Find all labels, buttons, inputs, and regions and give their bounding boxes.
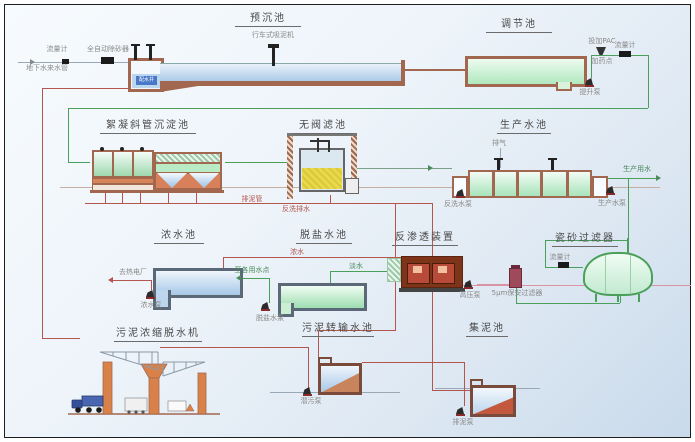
sludge-dewatering-machine	[68, 346, 222, 418]
vent-symbol	[497, 160, 500, 170]
backwash-pump-label: 反洗水泵	[440, 201, 476, 208]
sludge-pipe	[42, 88, 130, 89]
dosing-point-label: 加药点	[588, 58, 616, 65]
water-pipe	[628, 178, 629, 240]
ro-door-panel	[438, 266, 447, 273]
mixer-dot	[120, 147, 124, 151]
process-flow-diagram: 配水井	[0, 0, 695, 442]
arrow-right	[656, 175, 661, 181]
desalted-pump-symbol	[261, 301, 270, 311]
regulating-title: 调节池	[486, 19, 552, 33]
presed-title: 预沉池	[235, 13, 301, 27]
desalted-out-label: 至各用水点	[228, 267, 276, 274]
sludge-pipe	[362, 362, 464, 363]
concentrate-title: 浓水池	[154, 230, 204, 244]
floc-cell-divider	[112, 151, 114, 177]
valveless-outlet-box	[345, 178, 359, 194]
mixer-symbol	[134, 45, 137, 60]
transfer-pool-weir	[318, 357, 332, 365]
valveless-media	[302, 168, 342, 189]
collect-title: 集泥池	[466, 323, 508, 337]
regulating-meter-label: 流量计	[611, 42, 639, 49]
desalted-title: 脱盐水池	[296, 230, 352, 244]
sludge-pipe	[140, 192, 141, 203]
ceramic-meter-label: 流量计	[546, 254, 574, 261]
high-pressure-pump-symbol	[464, 279, 473, 289]
flow-meter-symbol	[619, 51, 631, 57]
desalted-out-pipe	[240, 278, 269, 279]
vent-symbol	[494, 158, 503, 160]
vent-symbol	[551, 160, 554, 170]
floc-title: 絮凝斜管沉淀池	[100, 120, 196, 134]
inlet-source-label: 地下水来水管	[18, 65, 76, 72]
settler-water	[154, 164, 222, 172]
product-water-pipe	[608, 178, 660, 179]
backwash-drain-pipe	[330, 195, 331, 203]
mixer-symbol	[146, 44, 155, 46]
desalted-pump-label: 脱盐水泵	[250, 315, 290, 322]
product-pump-symbol	[606, 185, 615, 195]
siphon-pipe	[328, 142, 330, 152]
lift-pump-label: 提升泵	[574, 89, 606, 96]
arrow-left	[236, 275, 241, 281]
presed-to-regulating-pipe	[403, 69, 465, 71]
sludge-pipe	[122, 192, 123, 203]
ceramic-filter-leg	[595, 294, 597, 302]
sludge-pipe	[105, 192, 106, 203]
concentrate-line-label: 浓水	[285, 249, 309, 256]
valveless-title: 无阀滤池	[293, 120, 353, 134]
product-title: 生产水池	[497, 120, 551, 134]
mixer-symbol	[149, 45, 152, 60]
transfer-pump-label: 潜污泵	[296, 398, 326, 405]
backwash-pump-symbol	[456, 188, 465, 198]
filtered-water-pipe	[357, 168, 452, 169]
collect-pump-label: 排泥泵	[448, 419, 478, 426]
desalted-out-pipe	[269, 278, 270, 303]
concentrate-pipe	[223, 257, 224, 268]
cartridge-filter-vessel	[509, 268, 522, 288]
transfer-pump-symbol	[303, 386, 312, 396]
flow-meter-symbol	[558, 262, 569, 268]
ceramic-title: 瓷砂过滤器	[552, 233, 618, 247]
settler-lamella	[154, 152, 222, 164]
product-divider	[566, 171, 569, 197]
arrow-right	[428, 165, 433, 171]
ceramic-filter-leg	[638, 294, 640, 302]
sludge-pipe	[308, 347, 309, 388]
product-out-label: 生产用水	[618, 166, 656, 173]
water-pipe	[516, 303, 620, 304]
sludge-manifold	[85, 203, 432, 204]
concentrate-pipe	[223, 257, 402, 258]
arrow-left	[108, 277, 113, 283]
floc-cells	[92, 150, 154, 178]
hp-pump-label: 高压泵	[454, 292, 486, 299]
ro-membrane-rack	[387, 258, 401, 282]
water-pipe	[68, 162, 90, 163]
inlet-meter-label: 流量计	[42, 46, 72, 53]
concentrate-pump-symbol	[146, 289, 155, 299]
ro-door-panel	[413, 266, 422, 273]
dewater-title: 污泥浓缩脱水机	[114, 328, 202, 342]
product-divider	[540, 171, 543, 197]
vent-label: 排气	[487, 140, 511, 147]
cartridge-filter-cap	[511, 265, 520, 268]
water-pipe	[620, 296, 621, 303]
collect-pump-symbol	[456, 406, 465, 416]
siphon-pipe	[310, 140, 330, 142]
collect-pool-weir	[470, 379, 483, 387]
product-divider	[516, 171, 519, 197]
concentrate-out-pipe	[112, 280, 151, 281]
ceramic-filter-leg	[617, 294, 619, 302]
scraper-machine-top	[268, 44, 279, 48]
sludge-pipe	[168, 192, 169, 203]
ro-title: 反渗透装置	[392, 232, 458, 246]
presed-basin-water	[160, 63, 404, 82]
vent-symbol	[548, 158, 557, 160]
water-pipe	[68, 108, 69, 162]
settled-water-pipe	[225, 162, 288, 163]
valveless-left-wall	[287, 136, 293, 199]
lift-pump-symbol	[585, 77, 594, 87]
water-main-pipe	[68, 108, 648, 109]
sludge-pipe	[42, 338, 80, 339]
permeate-line-label: 淡水	[344, 263, 368, 270]
ceramic-filter-vessel	[583, 252, 653, 296]
scraper-machine	[272, 46, 275, 66]
sludge-pipe	[196, 192, 197, 203]
sand-separator-label: 全自动除砂器	[82, 46, 134, 53]
presed-right-wall	[401, 60, 405, 86]
presed-well-box: 配水井	[136, 76, 157, 85]
product-pool	[468, 170, 592, 198]
floc-bottom-slab	[90, 190, 224, 193]
ceramic-filter-seam	[605, 255, 606, 293]
mixer-dot	[140, 147, 144, 151]
cartridge-filter-label: 5μm保安过滤器	[486, 290, 548, 297]
product-pump-label: 生产水泵	[594, 200, 630, 207]
floc-drain-label: 排泥管	[238, 196, 266, 203]
backwash-drain-label: 反洗排水	[278, 206, 314, 213]
sand-separator-symbol	[101, 57, 114, 64]
presed-well-label: 配水井	[139, 77, 154, 83]
water-pipe	[648, 55, 649, 108]
product-divider	[492, 171, 495, 197]
concentrate-out-label: 去热电厂	[114, 269, 152, 276]
scraper-label: 行车式吸泥机	[244, 32, 302, 39]
sludge-pipe	[432, 390, 474, 391]
concentrate-pump-label: 浓水泵	[136, 302, 166, 309]
mixer-dot	[100, 147, 104, 151]
floc-cell-divider	[132, 151, 134, 177]
ceramic-filter-seam	[630, 255, 631, 293]
regulating-sump	[556, 82, 572, 91]
transfer-title: 污泥转输水池	[302, 323, 374, 337]
sludge-pipe	[464, 362, 465, 406]
ro-feed-pipe	[477, 284, 509, 286]
sludge-pipe-main-left	[42, 88, 43, 338]
